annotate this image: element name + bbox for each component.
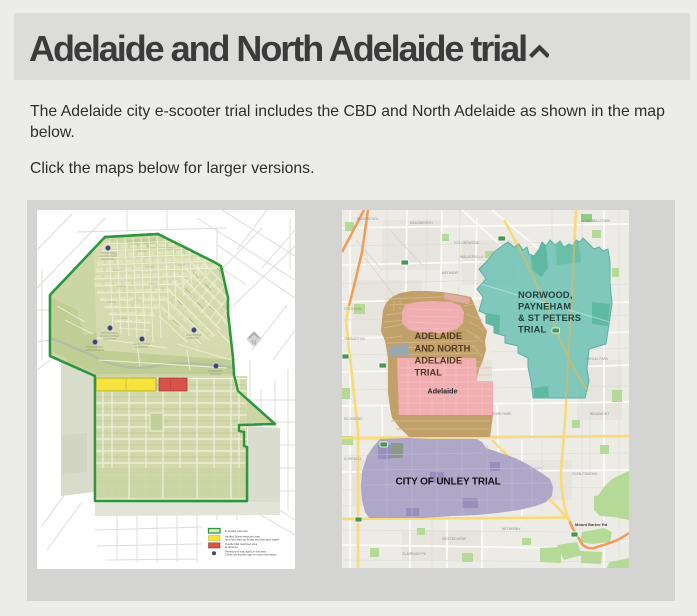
svg-text:CROYDON: CROYDON	[344, 307, 362, 311]
svg-text:& ST PETERS: & ST PETERS	[518, 313, 581, 323]
svg-text:E-scooter trial area: E-scooter trial area	[225, 529, 248, 533]
svg-text:4pm-6pm 6am on Friday and Satu: 4pm-6pm 6am on Friday and Saturday night…	[225, 538, 280, 542]
svg-text:KURRALTA: KURRALTA	[344, 457, 362, 461]
svg-text:THEBARTON: THEBARTON	[344, 337, 365, 341]
svg-text:CLARENCE PK: CLARENCE PK	[402, 552, 427, 556]
svg-text:ROSE PARK: ROSE PARK	[492, 412, 512, 416]
svg-text:CITY OF UNLEY TRIAL: CITY OF UNLEY TRIAL	[396, 477, 501, 488]
svg-text:AND NORTH: AND NORTH	[415, 344, 471, 354]
svg-text:RICHMOND: RICHMOND	[344, 417, 363, 421]
svg-text:PAYNEHAM: PAYNEHAM	[518, 302, 571, 312]
svg-text:WALKERVILLE: WALKERVILLE	[460, 255, 484, 259]
svg-text:ADELAIDE: ADELAIDE	[415, 331, 463, 341]
svg-text:REGAL PARK: REGAL PARK	[587, 357, 609, 361]
svg-text:TRIAL: TRIAL	[518, 325, 546, 335]
svg-text:TRIAL: TRIAL	[415, 368, 443, 378]
svg-text:Adelaide: Adelaide	[428, 387, 458, 396]
svg-text:NETHERBY: NETHERBY	[502, 527, 521, 531]
svg-text:at all times: at all times	[225, 545, 239, 549]
svg-text:NORWOOD,: NORWOOD,	[518, 290, 573, 300]
svg-text:Mount Barker Rd: Mount Barker Rd	[575, 522, 608, 527]
svg-text:WESTBOURNE: WESTBOURNE	[442, 537, 467, 541]
svg-text:NAILSWORTH: NAILSWORTH	[410, 221, 433, 225]
svg-text:Check the scooter app for more: Check the scooter app for more informati…	[225, 553, 277, 557]
svg-text:N: N	[252, 340, 257, 347]
svg-text:GLEN OSMOND: GLEN OSMOND	[572, 472, 598, 476]
svg-text:BEAUMONT: BEAUMONT	[590, 412, 609, 416]
svg-text:BLAIR ATHOL: BLAIR ATHOL	[357, 217, 379, 221]
svg-text:MEDINDIE: MEDINDIE	[442, 271, 459, 275]
svg-text:COLLINSWOOD: COLLINSWOOD	[454, 241, 480, 245]
svg-text:CAMPBELLTOWN: CAMPBELLTOWN	[582, 219, 611, 223]
svg-text:ADELAIDE: ADELAIDE	[415, 356, 463, 366]
